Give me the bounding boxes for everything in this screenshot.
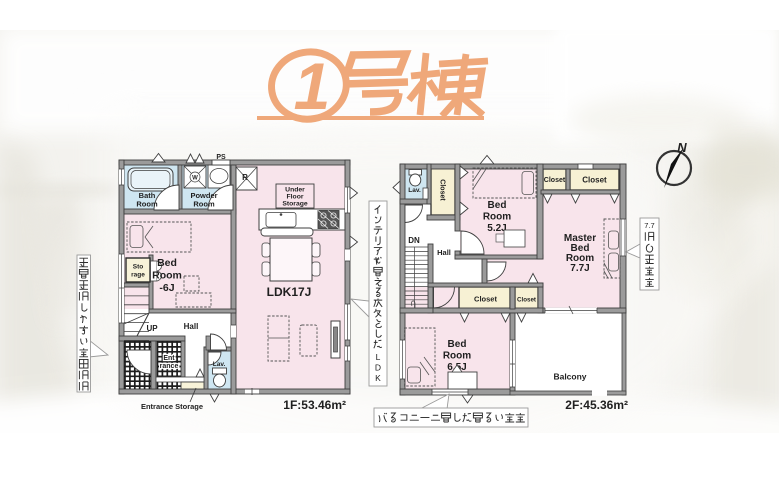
svg-text:Room: Room bbox=[483, 212, 511, 223]
svg-text:UP: UP bbox=[146, 324, 158, 333]
svg-text:Under: Under bbox=[285, 187, 305, 194]
svg-text:PS: PS bbox=[216, 154, 226, 161]
svg-text:Storage: Storage bbox=[282, 201, 308, 208]
svg-text:Closet: Closet bbox=[474, 295, 497, 304]
svg-text:Sto: Sto bbox=[133, 264, 144, 271]
svg-text:Closet: Closet bbox=[582, 176, 607, 185]
svg-text:Closet: Closet bbox=[517, 297, 536, 304]
svg-text:Room: Room bbox=[193, 200, 215, 209]
svg-text:Bed: Bed bbox=[448, 339, 467, 350]
svg-text:Lav.: Lav. bbox=[213, 361, 226, 368]
svg-text:Bed: Bed bbox=[157, 257, 177, 269]
svg-text:7.7: 7.7 bbox=[644, 221, 654, 230]
svg-text:Closet: Closet bbox=[439, 179, 446, 201]
svg-text:rance: rance bbox=[160, 363, 179, 370]
svg-text:DN: DN bbox=[408, 236, 420, 245]
svg-text:Room: Room bbox=[443, 351, 471, 362]
svg-text:Room: Room bbox=[136, 200, 158, 209]
svg-text:Floor: Floor bbox=[287, 194, 304, 201]
svg-text:rage: rage bbox=[131, 272, 145, 279]
svg-text:LDK17J: LDK17J bbox=[267, 285, 312, 299]
svg-text:Entrance Storage: Entrance Storage bbox=[141, 402, 203, 411]
svg-text:Balcony: Balcony bbox=[553, 372, 586, 382]
svg-text:1: 1 bbox=[294, 49, 331, 123]
svg-text:Lav.: Lav. bbox=[408, 187, 421, 194]
svg-text:2F:45.36m²: 2F:45.36m² bbox=[565, 398, 628, 412]
svg-text:R: R bbox=[242, 173, 248, 182]
svg-text:Ent: Ent bbox=[163, 355, 175, 362]
svg-text:D: D bbox=[375, 363, 381, 373]
svg-text:-6J: -6J bbox=[159, 282, 174, 294]
svg-text:N: N bbox=[677, 140, 687, 155]
svg-text:Room: Room bbox=[152, 270, 182, 282]
svg-text:Bed: Bed bbox=[488, 200, 507, 211]
svg-text:Hall: Hall bbox=[437, 248, 451, 257]
svg-text:K: K bbox=[375, 373, 381, 383]
svg-text:Hall: Hall bbox=[184, 322, 199, 331]
svg-text:Closet: Closet bbox=[544, 177, 566, 184]
svg-text:7.7J: 7.7J bbox=[570, 263, 589, 274]
svg-text:1F:53.46m²: 1F:53.46m² bbox=[283, 398, 346, 412]
svg-text:L: L bbox=[376, 352, 381, 362]
svg-text:W: W bbox=[192, 176, 198, 182]
